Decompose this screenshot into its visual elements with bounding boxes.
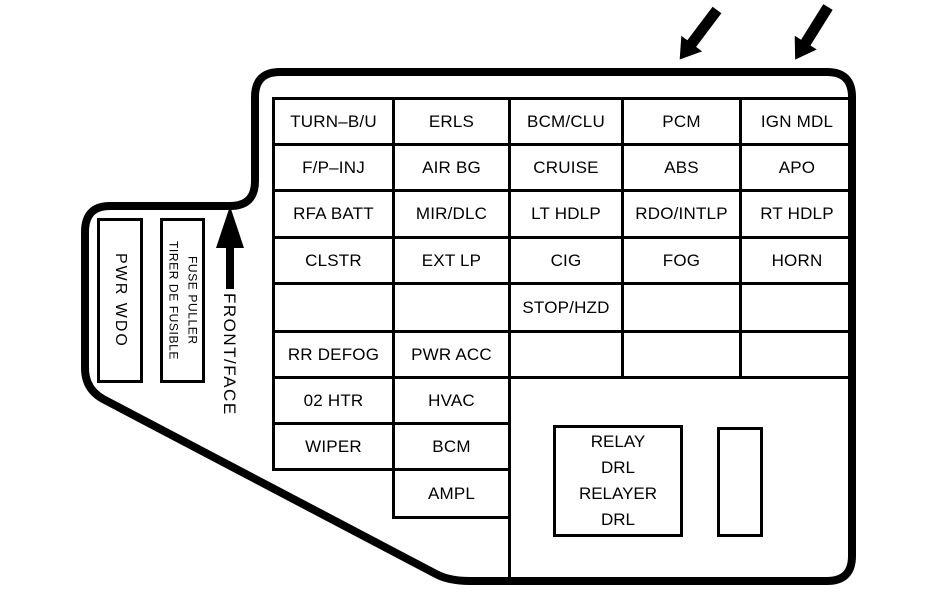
fuse-cell-02-htr: 02 HTR xyxy=(272,376,395,425)
relay-drl-box: RELAY DRL RELAYER DRL xyxy=(553,425,683,537)
fuse-cell-horn: HORN xyxy=(739,236,855,285)
fuse-cell-empty xyxy=(272,282,395,333)
fuse-cell-turn-b-u: TURN–B/U xyxy=(272,97,395,146)
pwr-wdo-box: PWR WDO xyxy=(97,218,143,383)
fuse-puller-box: FUSE PULLER TIRER DE FUSIBLE xyxy=(160,218,205,383)
fuse-box-diagram: TURN–B/U ERLS BCM/CLU PCM IGN MDL F/P–IN… xyxy=(0,0,943,595)
relay-box-line: RELAYER xyxy=(579,481,657,507)
fuse-cell-abs: ABS xyxy=(621,143,742,192)
fuse-cell-rfa-batt: RFA BATT xyxy=(272,189,395,239)
pwr-wdo-label: PWR WDO xyxy=(111,253,129,348)
fuse-cell-rt-hdlp: RT HDLP xyxy=(739,189,855,239)
down-left-arrow-icon xyxy=(784,0,839,66)
fuse-cell-bcm-clu: BCM/CLU xyxy=(508,97,624,146)
fuse-cell-empty xyxy=(621,282,742,333)
fuse-cell-erls: ERLS xyxy=(392,97,511,146)
front-face-label: FRONT/FACE xyxy=(219,293,239,416)
fuse-cell-empty xyxy=(392,282,511,333)
fuse-cell-hvac: HVAC xyxy=(392,376,511,425)
fuse-cell-fog: FOG xyxy=(621,236,742,285)
down-left-arrow-icon xyxy=(669,2,727,67)
fuse-cell-pcm: PCM xyxy=(621,97,742,146)
fuse-cell-empty xyxy=(508,330,624,379)
fuse-puller-label-en: FUSE PULLER xyxy=(183,241,202,360)
fuse-cell-wiper: WIPER xyxy=(272,422,395,471)
fuse-cell-clstr: CLSTR xyxy=(272,236,395,285)
fuse-cell-air-bg: AIR BG xyxy=(392,143,511,192)
fuse-cell-empty xyxy=(621,330,742,379)
relay-box-line: RELAY xyxy=(591,429,646,455)
fuse-cell-pwr-acc: PWR ACC xyxy=(392,330,511,379)
fuse-cell-empty xyxy=(739,282,855,333)
fuse-cell-cruise: CRUISE xyxy=(508,143,624,192)
empty-relay-slot xyxy=(717,427,763,537)
up-arrow-icon xyxy=(216,206,244,289)
fuse-cell-ign-mdl: IGN MDL xyxy=(739,97,855,146)
fuse-cell-empty xyxy=(739,330,855,379)
fuse-cell-bcm: BCM xyxy=(392,422,511,471)
relay-box-line: DRL xyxy=(601,455,635,481)
fuse-cell-rdo-intlp: RDO/INTLP xyxy=(621,189,742,239)
fuse-cell-f-p-inj: F/P–INJ xyxy=(272,143,395,192)
fuse-cell-rr-defog: RR DEFOG xyxy=(272,330,395,379)
relay-box-line: DRL xyxy=(601,507,635,533)
fuse-cell-ext-lp: EXT LP xyxy=(392,236,511,285)
fuse-cell-mir-dlc: MIR/DLC xyxy=(392,189,511,239)
fuse-cell-cig: CIG xyxy=(508,236,624,285)
fuse-cell-lt-hdlp: LT HDLP xyxy=(508,189,624,239)
fuse-cell-stop-hzd: STOP/HZD xyxy=(508,282,624,333)
fuse-cell-ampl: AMPL xyxy=(392,468,511,519)
fuse-puller-label-fr: TIRER DE FUSIBLE xyxy=(163,241,182,360)
fuse-cell-apo: APO xyxy=(739,143,855,192)
